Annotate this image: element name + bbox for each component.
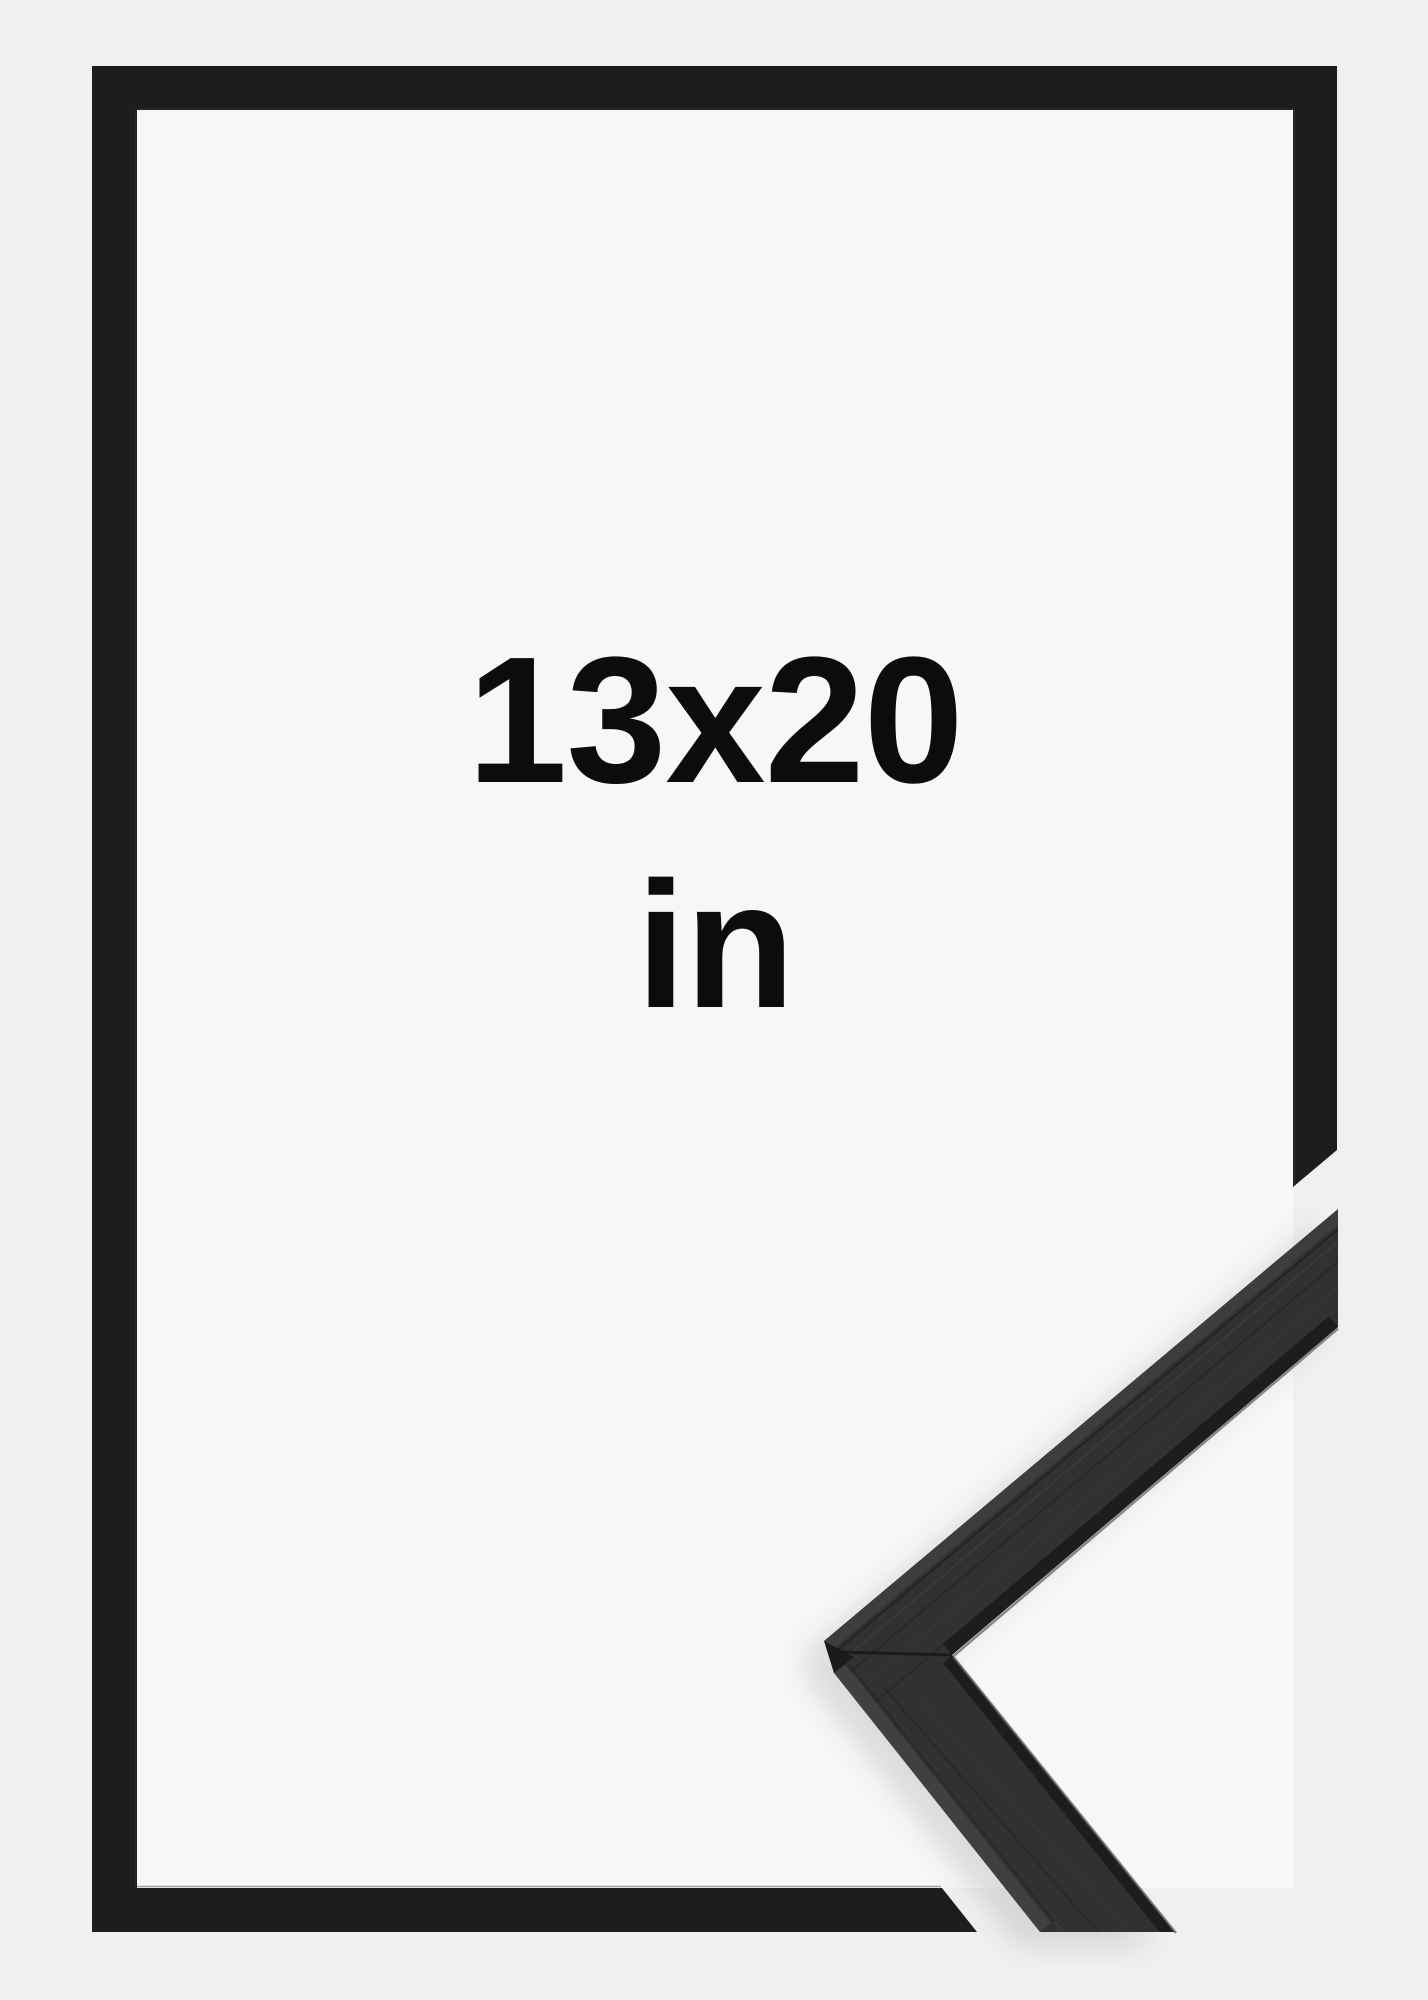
size-unit: in: [137, 833, 1293, 1058]
frame-top-border: [92, 66, 1337, 110]
size-label: 13x20 in: [137, 608, 1293, 1058]
size-value: 13x20: [137, 608, 1293, 833]
frame-left-border: [92, 66, 137, 1932]
frame-bottom-border: [92, 1888, 977, 1932]
product-image: 13x20 in: [0, 0, 1428, 2000]
frame-right-border: [1293, 66, 1337, 1187]
